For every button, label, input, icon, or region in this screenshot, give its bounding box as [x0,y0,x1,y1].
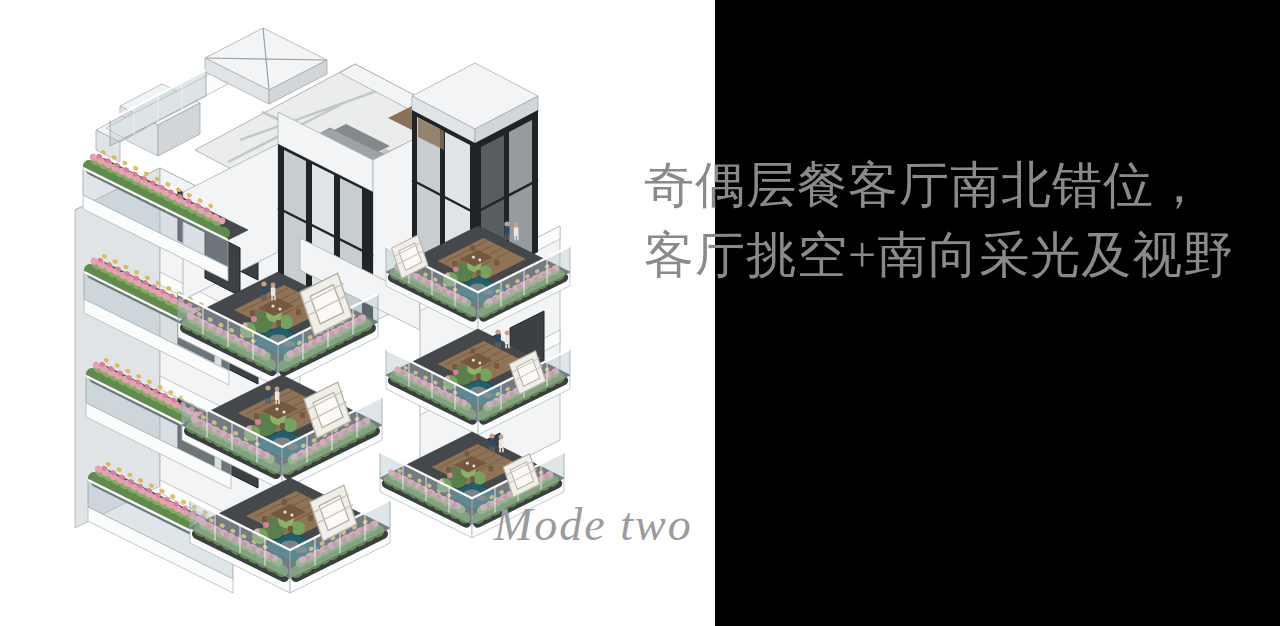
mode-label: Mode two [494,498,693,551]
right-black-panel [715,0,1280,626]
slide: 奇偶层餐客厅南北错位， 客厅挑空+南向采光及视野 Mode two [0,0,1280,626]
caption-line-1: 奇偶层餐客厅南北错位， [644,150,1234,220]
caption-line-2: 客厅挑空+南向采光及视野 [644,220,1234,290]
caption-text: 奇偶层餐客厅南北错位， 客厅挑空+南向采光及视野 [644,150,1234,290]
